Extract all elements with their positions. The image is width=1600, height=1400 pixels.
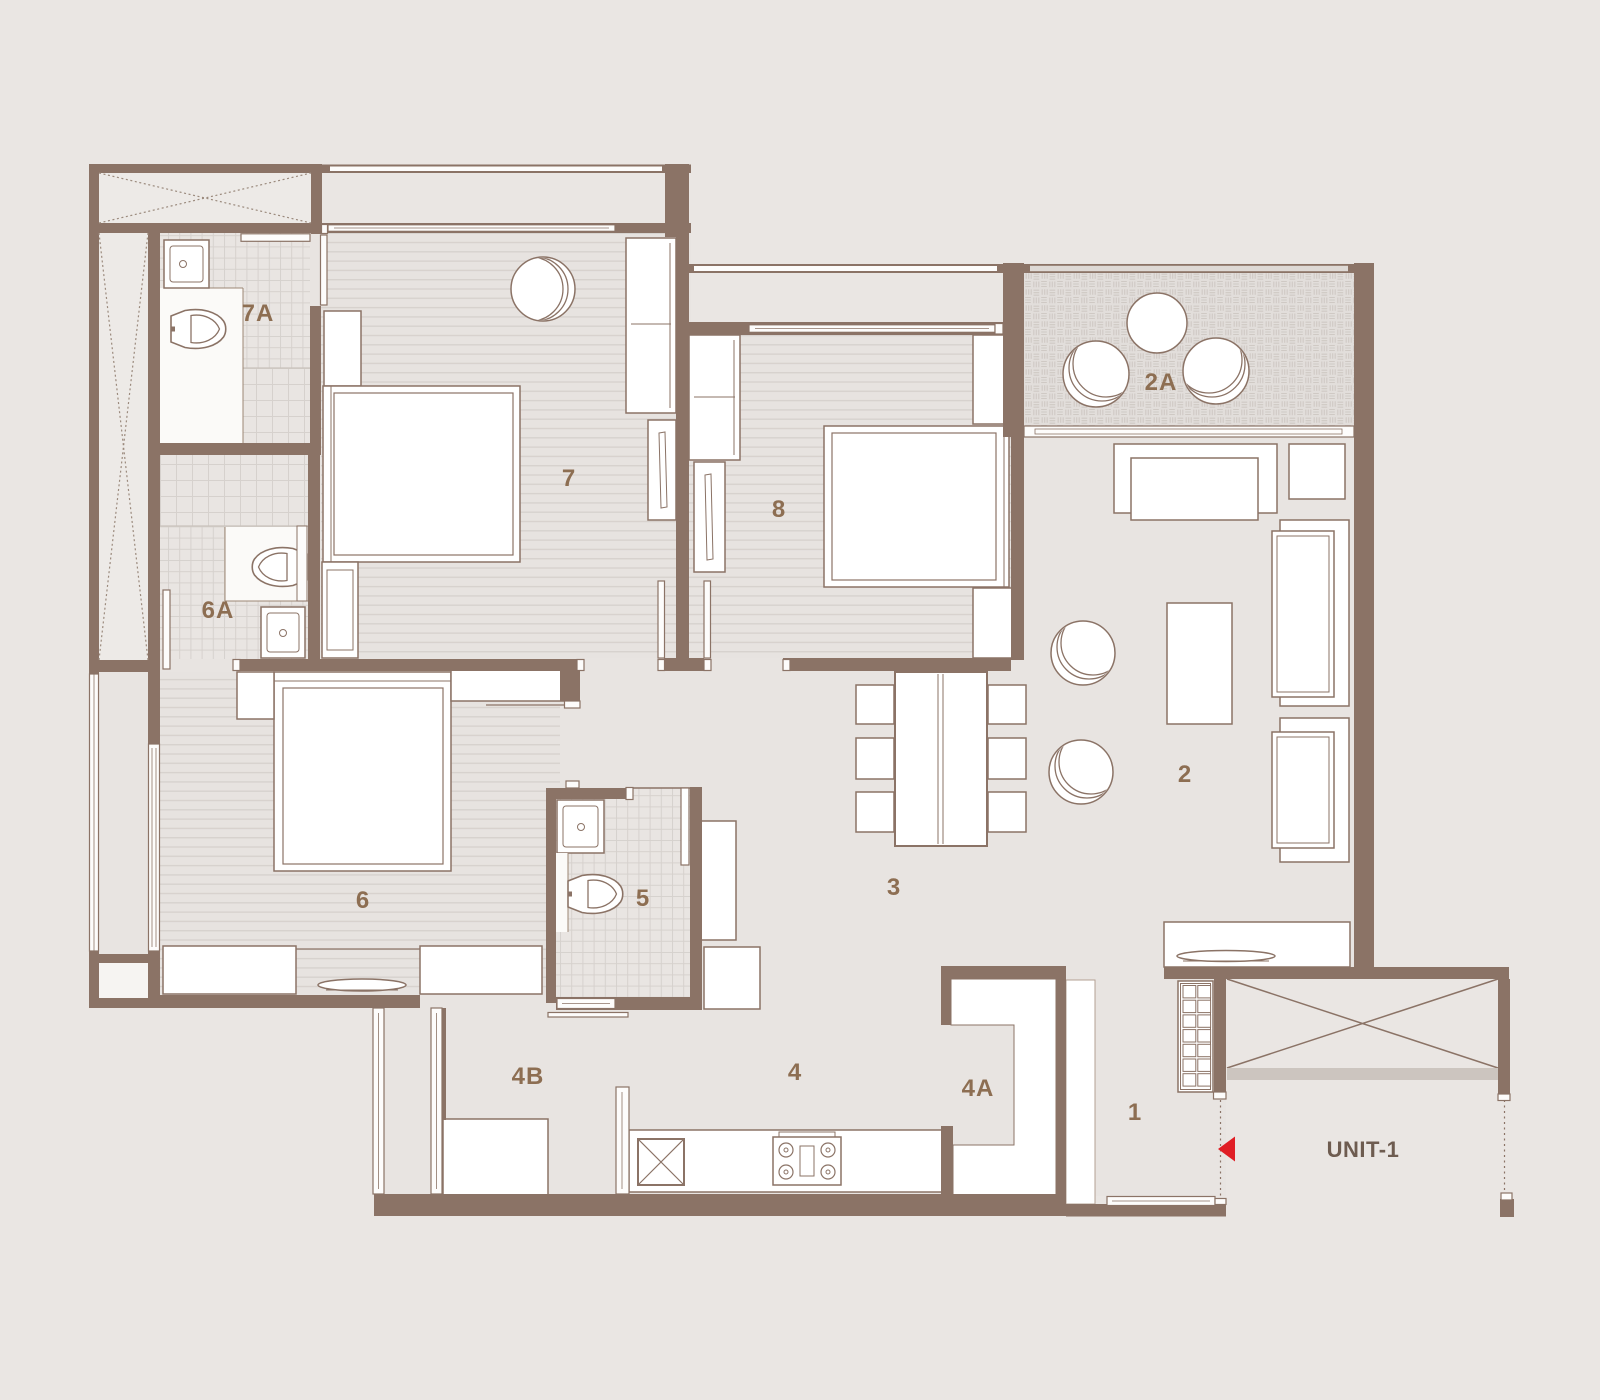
- svg-text:4: 4: [788, 1059, 802, 1086]
- svg-text:8: 8: [772, 496, 786, 523]
- svg-text:3: 3: [887, 874, 901, 901]
- svg-text:2A: 2A: [1145, 369, 1178, 396]
- svg-text:2: 2: [1178, 761, 1192, 788]
- svg-text:7: 7: [562, 465, 576, 492]
- svg-text:4A: 4A: [962, 1075, 995, 1102]
- svg-text:5: 5: [636, 885, 650, 912]
- svg-text:7A: 7A: [242, 300, 275, 327]
- svg-text:6: 6: [356, 887, 370, 914]
- svg-text:4B: 4B: [512, 1063, 545, 1090]
- svg-text:1: 1: [1128, 1099, 1142, 1126]
- svg-text:UNIT-1: UNIT-1: [1327, 1137, 1400, 1162]
- svg-text:6A: 6A: [202, 597, 235, 624]
